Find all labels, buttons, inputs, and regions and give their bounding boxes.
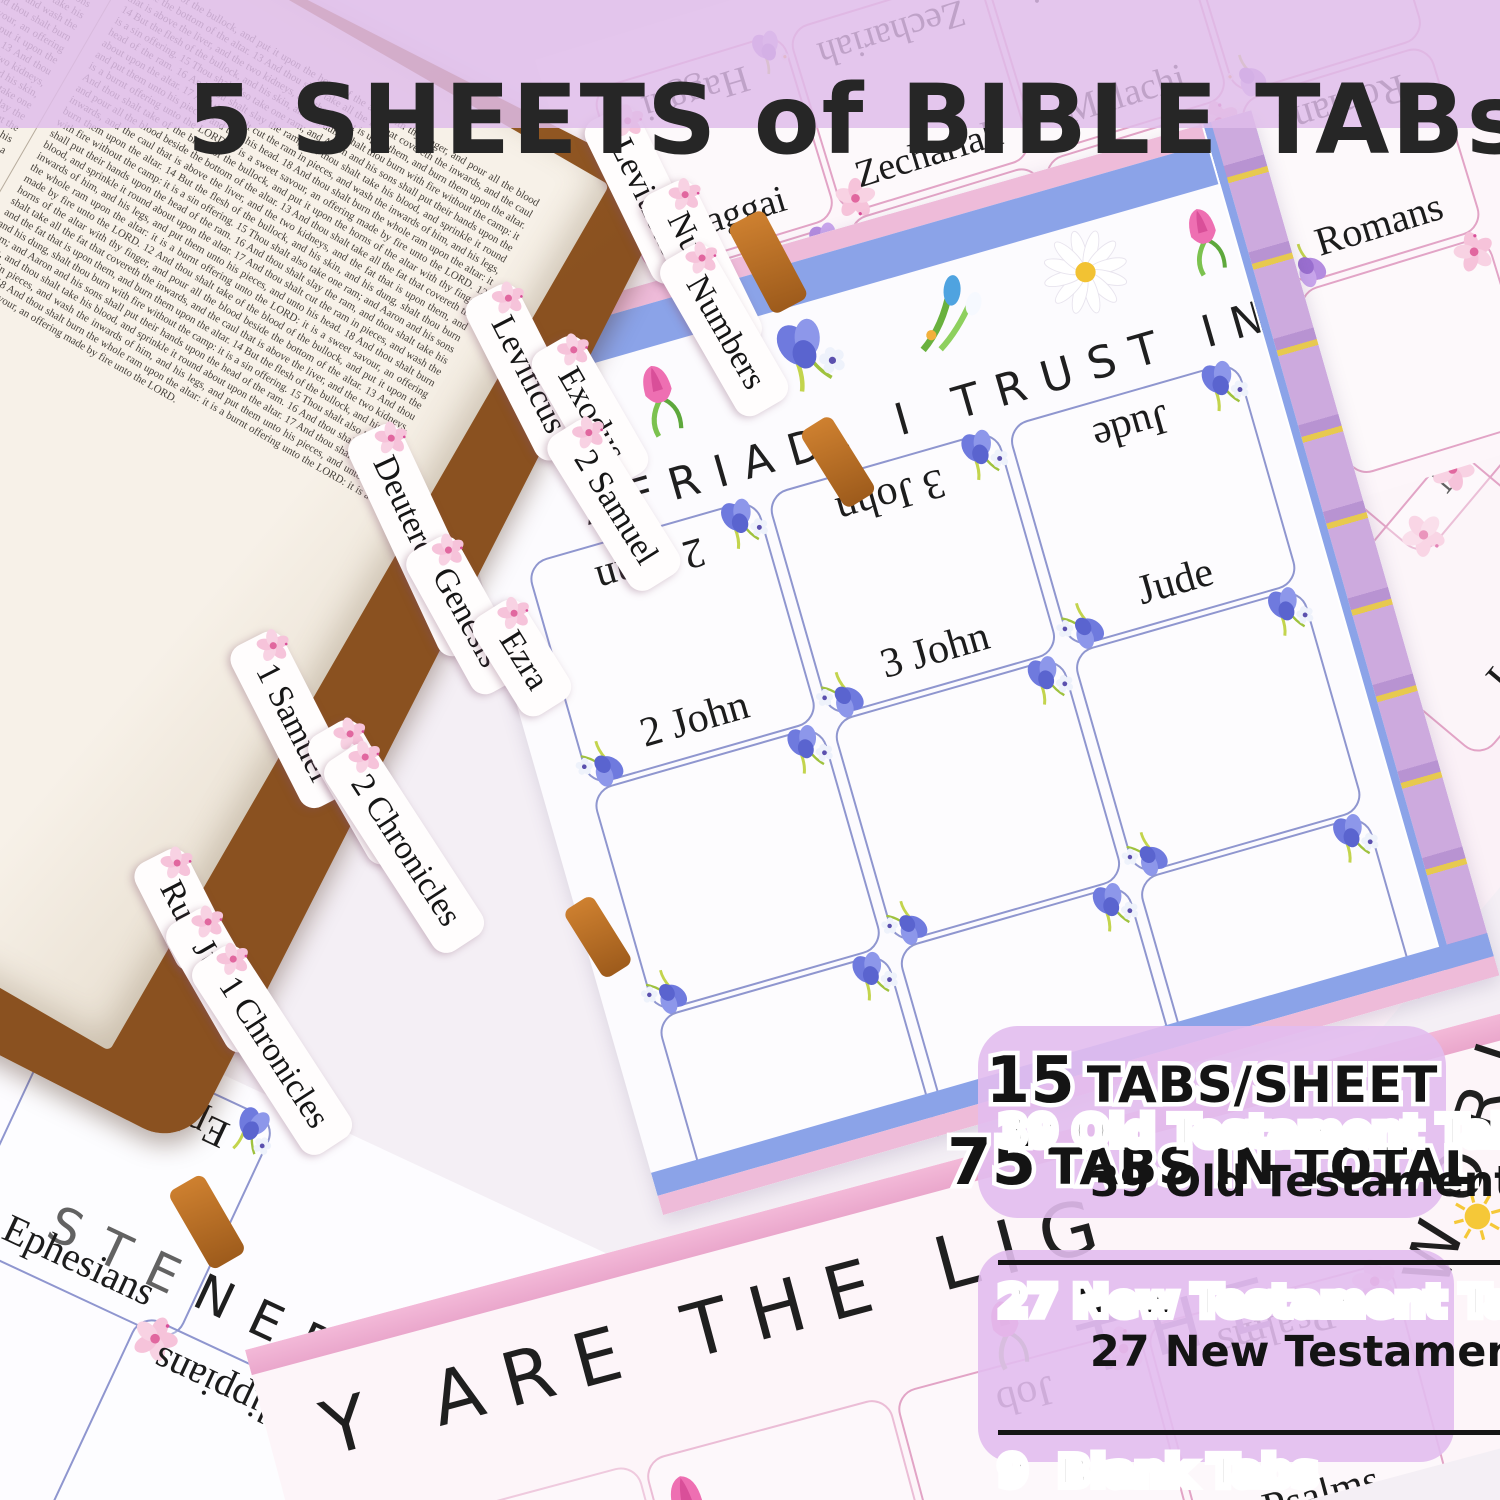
breakdown-item: 27 New Testament Tabs27 New Testament Ta… <box>998 1277 1500 1435</box>
bible-tab: 2 Chronicles <box>318 737 490 959</box>
tab-label-mirrored: Jude <box>1088 394 1175 461</box>
page-title: 5 SHEETS of BIBLE TABs 5 SHEETS of BIBLE… <box>0 0 1500 288</box>
product-image: Romans Mark Luke Haggai Haggai Zechariah… <box>0 0 1500 1500</box>
bible-tab-label: 2 Chronicles <box>343 768 469 934</box>
blank-tab-cell <box>0 1442 48 1500</box>
title-banner: 5 SHEETS of BIBLE TABs 5 SHEETS of BIBLE… <box>0 0 1500 128</box>
page-title-text: 5 SHEETS of BIBLE TABs <box>187 64 1500 176</box>
tab-label: 3 John <box>875 612 995 689</box>
breakdown-item: 39 Old Testament Tabs39 Old Testament Ta… <box>998 1107 1500 1265</box>
tab-label: Ephesians <box>0 1204 163 1315</box>
tab-label: Philippians <box>72 1493 255 1500</box>
tab-breakdown-panel: 39 Old Testament Tabs39 Old Testament Ta… <box>978 1250 1454 1462</box>
tab-label: Jude <box>1132 548 1219 615</box>
per-sheet-text: TABS/SHEET <box>1087 1056 1439 1114</box>
tab-label: 2 John <box>635 681 755 758</box>
breakdown-item: 9 Blank Tabs9 Blank Tabs <box>998 1447 1420 1500</box>
tab-label: Luke <box>1476 600 1500 702</box>
